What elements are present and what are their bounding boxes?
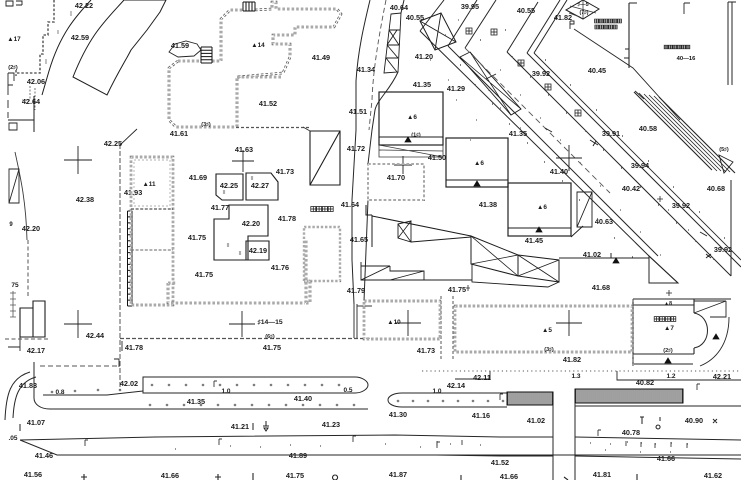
svg-text:40—16: 40—16 [677, 56, 696, 62]
svg-text:41.40: 41.40 [294, 394, 312, 403]
svg-text:▲6: ▲6 [474, 160, 484, 167]
svg-text:41.34: 41.34 [357, 65, 376, 74]
svg-text:41.75: 41.75 [188, 233, 206, 242]
svg-text:75: 75 [11, 282, 19, 289]
svg-text:41.02: 41.02 [527, 416, 545, 425]
svg-text:▲17: ▲17 [7, 36, 21, 43]
svg-text:41.49: 41.49 [312, 53, 330, 62]
svg-text:40.78: 40.78 [622, 428, 640, 437]
svg-text:41.64: 41.64 [341, 200, 360, 209]
svg-text:41.79: 41.79 [347, 286, 365, 295]
svg-text:41.73: 41.73 [276, 167, 294, 176]
svg-text:41.62: 41.62 [704, 471, 722, 480]
svg-text:41.35: 41.35 [187, 397, 205, 406]
svg-text:42.02: 42.02 [120, 379, 138, 388]
svg-text:41.45: 41.45 [525, 236, 543, 245]
svg-text:0.5: 0.5 [343, 387, 352, 394]
svg-text:41.46: 41.46 [35, 451, 53, 460]
svg-text:41.78: 41.78 [125, 343, 143, 352]
svg-text:39.91: 39.91 [602, 129, 620, 138]
svg-text:41.56: 41.56 [24, 470, 42, 479]
svg-text:42.17: 42.17 [27, 346, 45, 355]
svg-text:41.38: 41.38 [479, 200, 497, 209]
svg-text:0.8: 0.8 [55, 389, 64, 396]
svg-text:41.69: 41.69 [189, 173, 207, 182]
svg-text:41.75: 41.75 [195, 270, 213, 279]
svg-text:40.58: 40.58 [639, 124, 657, 133]
svg-text:▲14: ▲14 [251, 42, 265, 49]
svg-text:41.35: 41.35 [509, 129, 527, 138]
svg-text:▲11: ▲11 [142, 181, 156, 188]
svg-text:♯14—15: ♯14—15 [257, 319, 283, 326]
svg-text:(7♯): (7♯) [580, 10, 589, 16]
svg-text:41.50: 41.50 [428, 153, 446, 162]
svg-text:41.68: 41.68 [592, 283, 610, 292]
svg-text:41.66: 41.66 [161, 471, 179, 480]
svg-text:41.66: 41.66 [657, 454, 675, 463]
svg-text:▲5: ▲5 [542, 327, 552, 334]
svg-text:42.20: 42.20 [22, 224, 40, 233]
svg-text:1.3: 1.3 [571, 373, 580, 380]
svg-text:(5♯): (5♯) [719, 147, 729, 153]
svg-text:39.92: 39.92 [672, 201, 690, 210]
svg-text:1.0: 1.0 [221, 388, 230, 395]
svg-text:▲6: ▲6 [407, 114, 417, 121]
svg-text:42.06: 42.06 [27, 77, 45, 86]
svg-text:41.20: 41.20 [415, 52, 433, 61]
svg-text:41.82: 41.82 [563, 355, 581, 364]
svg-text:41.73: 41.73 [417, 346, 435, 355]
svg-text:▲8: ▲8 [664, 301, 672, 307]
svg-text:39.92: 39.92 [532, 69, 550, 78]
svg-text:41.51: 41.51 [349, 107, 367, 116]
svg-text:▲7: ▲7 [664, 325, 674, 332]
svg-text:40.55: 40.55 [406, 13, 424, 22]
svg-text:41.66: 41.66 [500, 472, 518, 480]
svg-text:41.35: 41.35 [413, 80, 431, 89]
svg-text:41.02: 41.02 [583, 250, 601, 259]
svg-text:(2♯): (2♯) [8, 65, 18, 71]
svg-text:▲6: ▲6 [537, 204, 547, 211]
svg-text:41.76: 41.76 [271, 263, 289, 272]
svg-text:41.52: 41.52 [491, 458, 509, 467]
svg-text:41.52: 41.52 [259, 99, 277, 108]
svg-text:40.42: 40.42 [622, 184, 640, 193]
svg-text:▲10: ▲10 [387, 319, 401, 326]
svg-text:39.95: 39.95 [461, 2, 479, 11]
svg-text:(2♯): (2♯) [663, 348, 673, 354]
svg-text:(3♯): (3♯) [201, 122, 211, 128]
svg-text:41.59: 41.59 [171, 41, 189, 50]
svg-text:41.21: 41.21 [231, 422, 249, 431]
svg-text:41.82: 41.82 [554, 13, 572, 22]
svg-text:41.65: 41.65 [350, 235, 368, 244]
svg-text:40.68: 40.68 [707, 184, 725, 193]
svg-text:41.30: 41.30 [389, 410, 407, 419]
svg-text:.05: .05 [8, 435, 17, 442]
svg-text:42.59: 42.59 [71, 33, 89, 42]
svg-text:42.25: 42.25 [104, 139, 122, 148]
svg-text:42.21: 42.21 [713, 372, 731, 381]
svg-text:(1♯): (1♯) [411, 133, 421, 139]
svg-text:42.38: 42.38 [76, 195, 94, 204]
svg-text:41.75: 41.75 [263, 343, 281, 352]
svg-text:42.44: 42.44 [86, 331, 105, 340]
svg-text:41.72: 41.72 [347, 144, 365, 153]
svg-text:42.14: 42.14 [447, 381, 466, 390]
svg-text:41.89: 41.89 [289, 451, 307, 460]
svg-text:41.75: 41.75 [448, 285, 466, 294]
svg-text:42.22: 42.22 [75, 1, 93, 10]
svg-text:40.90: 40.90 [685, 416, 703, 425]
svg-text:41.75: 41.75 [286, 471, 304, 480]
svg-text:41.93: 41.93 [124, 188, 142, 197]
svg-text:41.78: 41.78 [278, 214, 296, 223]
svg-text:41.07: 41.07 [27, 418, 45, 427]
svg-text:42.25: 42.25 [220, 181, 238, 190]
svg-text:40.45: 40.45 [588, 66, 606, 75]
svg-text:42.64: 42.64 [22, 97, 41, 106]
svg-text:41.77: 41.77 [211, 203, 229, 212]
svg-text:♯—5: ♯—5 [577, 2, 588, 8]
svg-text:39.92: 39.92 [714, 245, 732, 254]
svg-text:41.29: 41.29 [447, 84, 465, 93]
svg-text:42.27: 42.27 [251, 181, 269, 190]
svg-text:42.20: 42.20 [242, 219, 260, 228]
svg-text:40.64: 40.64 [390, 3, 409, 12]
svg-text:41.23: 41.23 [322, 420, 340, 429]
svg-text:1.0: 1.0 [432, 388, 441, 395]
svg-text:1.2: 1.2 [666, 373, 675, 380]
svg-text:41.83: 41.83 [19, 381, 37, 390]
svg-text:41.87: 41.87 [389, 470, 407, 479]
svg-text:41.70: 41.70 [387, 173, 405, 182]
svg-text:41.16: 41.16 [472, 411, 490, 420]
svg-text:40.55: 40.55 [517, 6, 535, 15]
svg-text:41.40: 41.40 [550, 167, 568, 176]
svg-text:42.11: 42.11 [473, 373, 491, 382]
svg-text:40.82: 40.82 [636, 378, 654, 387]
svg-text:(3♯): (3♯) [544, 347, 554, 353]
svg-text:41.81: 41.81 [593, 470, 611, 479]
svg-text:(6♯): (6♯) [265, 334, 275, 340]
svg-text:41.61: 41.61 [170, 129, 188, 138]
svg-text:39.94: 39.94 [631, 161, 650, 170]
svg-text:42.19: 42.19 [249, 246, 267, 255]
svg-text:41.63: 41.63 [235, 145, 253, 154]
